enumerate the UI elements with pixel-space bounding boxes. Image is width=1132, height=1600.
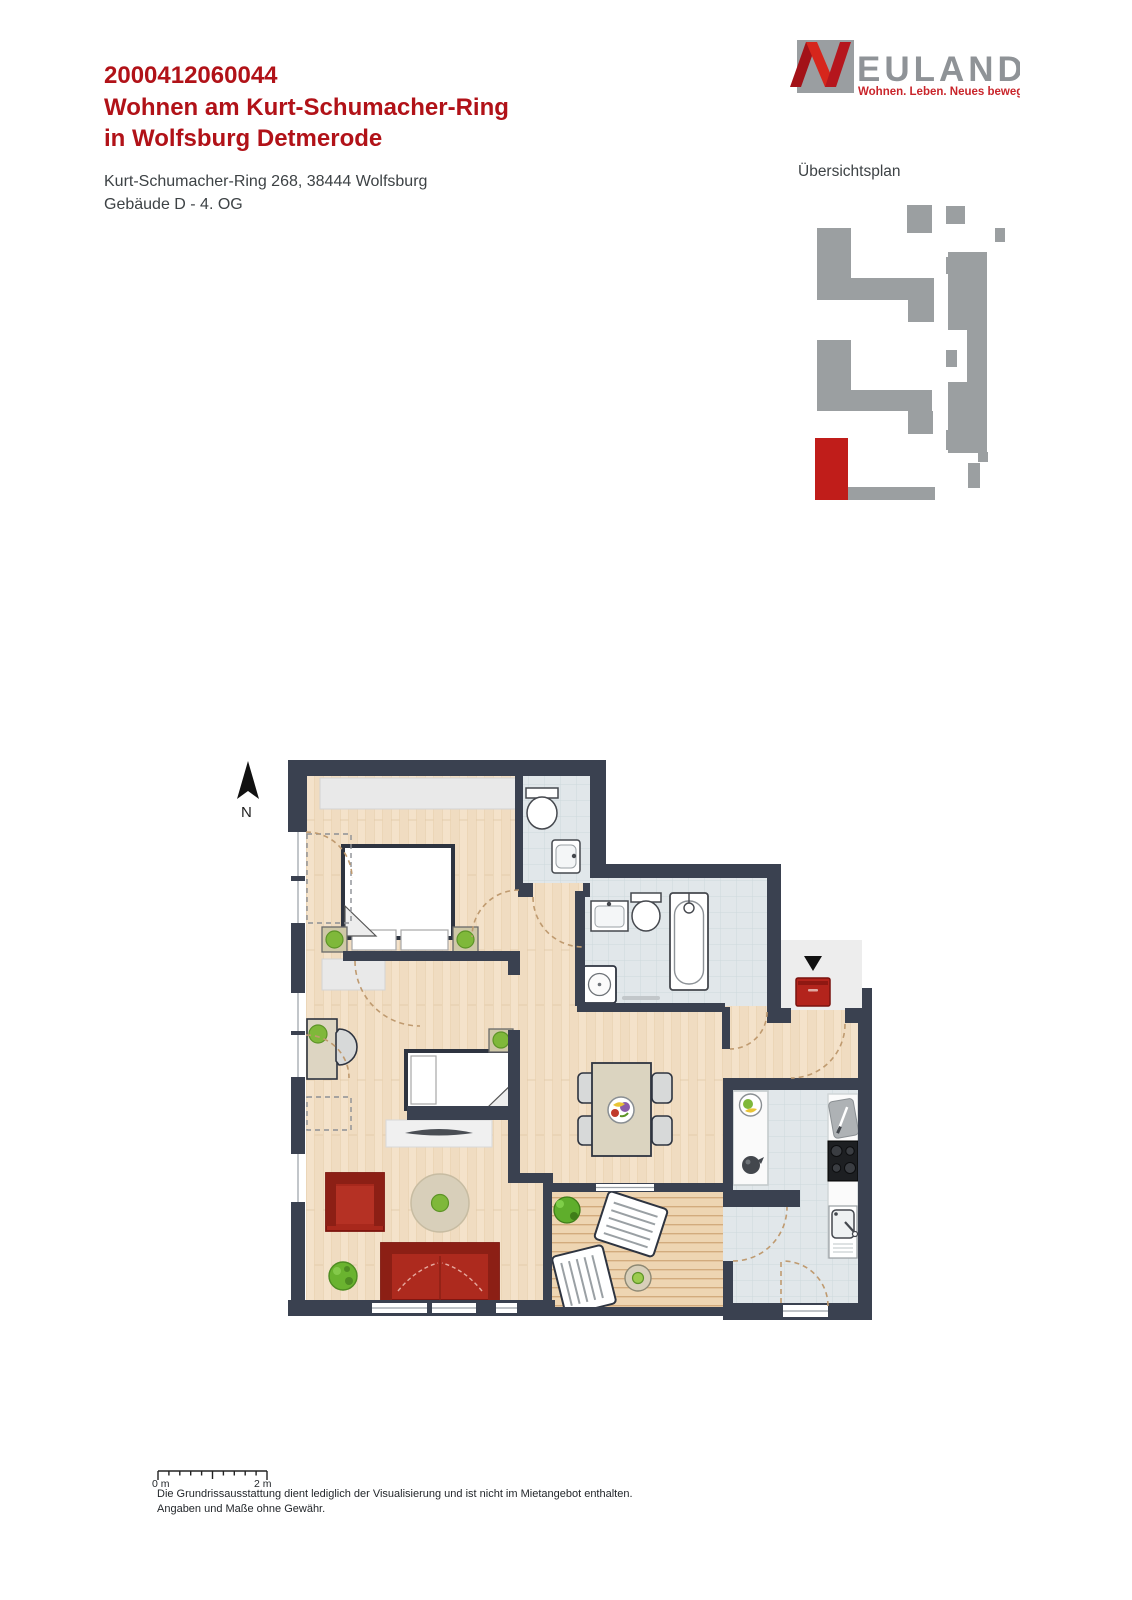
balcony-side-table: [625, 1265, 651, 1291]
corridor-floor: [767, 1023, 858, 1080]
wc-sink: [552, 840, 580, 873]
dining-chair: [652, 1116, 672, 1145]
plant-icon: [309, 1025, 327, 1043]
floor-plan: N: [205, 712, 895, 1337]
bathroom-sink: [591, 901, 628, 931]
kitchen-counter: [828, 1094, 859, 1258]
living-armchair: [326, 1173, 384, 1231]
entrance-doormat: [796, 978, 830, 1006]
kitchen-sink: [829, 1206, 858, 1258]
listing-address-block: Kurt-Schumacher-Ring 268, 38444 Wolfsbur…: [104, 170, 664, 216]
living-window-left: [291, 1154, 305, 1202]
overview-plan-label: Übersichtsplan: [798, 163, 901, 181]
bedroom2-wardrobe: [322, 959, 385, 990]
listing-title-line1: Wohnen am Kurt-Schumacher-Ring: [104, 92, 664, 124]
plant-icon: [326, 931, 343, 948]
balcony-door: [596, 1184, 654, 1191]
living-rug: [411, 1174, 469, 1232]
kitchen-peninsula: [733, 1091, 768, 1185]
washing-machine: [583, 966, 616, 1003]
plant-icon: [457, 931, 474, 948]
site-plan: [790, 195, 1005, 500]
dining-chair: [652, 1073, 672, 1103]
listing-id: 2000412060044: [104, 60, 664, 92]
wc-toilet: [526, 788, 558, 829]
bedroom2-sideboard: [386, 1120, 492, 1147]
bedroom1-wardrobe: [320, 778, 516, 809]
listing-address: Kurt-Schumacher-Ring 268, 38444 Wolfsbur…: [104, 170, 664, 193]
site-highlighted-building: [815, 438, 848, 500]
listing-building-floor: Gebäude D - 4. OG: [104, 193, 664, 216]
logo-wordmark: EULAND: [857, 50, 1020, 89]
plant-icon: [432, 1195, 449, 1212]
bedroom1-double-bed: [343, 846, 453, 950]
fruit-bowl: [740, 1094, 762, 1116]
bedroom2-window: [291, 993, 305, 1077]
disclaimer: Die Grundrissausstattung dient lediglich…: [157, 1487, 757, 1518]
bedroom1-nightstand-right: [453, 927, 478, 952]
living-sofa: [381, 1243, 499, 1300]
listing-title-line2: in Wolfsburg Detmerode: [104, 123, 664, 155]
bathroom-bathtub: [670, 893, 708, 990]
balcony-plant: [554, 1197, 580, 1223]
towel-rail: [622, 996, 660, 1000]
north-label: N: [241, 804, 252, 821]
neuland-logo: EULAND Wohnen. Leben. Neues bewegen.: [770, 30, 1020, 105]
logo-tagline: Wohnen. Leben. Neues bewegen.: [858, 86, 1020, 98]
stove: [828, 1141, 858, 1181]
plant-icon: [493, 1032, 509, 1048]
fruit-bowl: [608, 1097, 634, 1123]
living-floor-plant: [329, 1262, 357, 1290]
disclaimer-line2: Angaben und Maße ohne Gewähr.: [157, 1502, 757, 1517]
kitchen-balcony-window: [783, 1305, 828, 1317]
disclaimer-line1: Die Grundrissausstattung dient lediglich…: [157, 1487, 757, 1502]
bedroom1-nightstand-left: [322, 927, 347, 952]
entrance-door-floor: [791, 1008, 845, 1025]
bathroom-toilet: [631, 893, 661, 931]
document-header: 2000412060044 Wohnen am Kurt-Schumacher-…: [104, 60, 664, 216]
scale-ruler: [158, 1471, 267, 1480]
north-arrow-icon: N: [237, 761, 259, 821]
bedroom2-single-bed: [406, 1051, 516, 1109]
